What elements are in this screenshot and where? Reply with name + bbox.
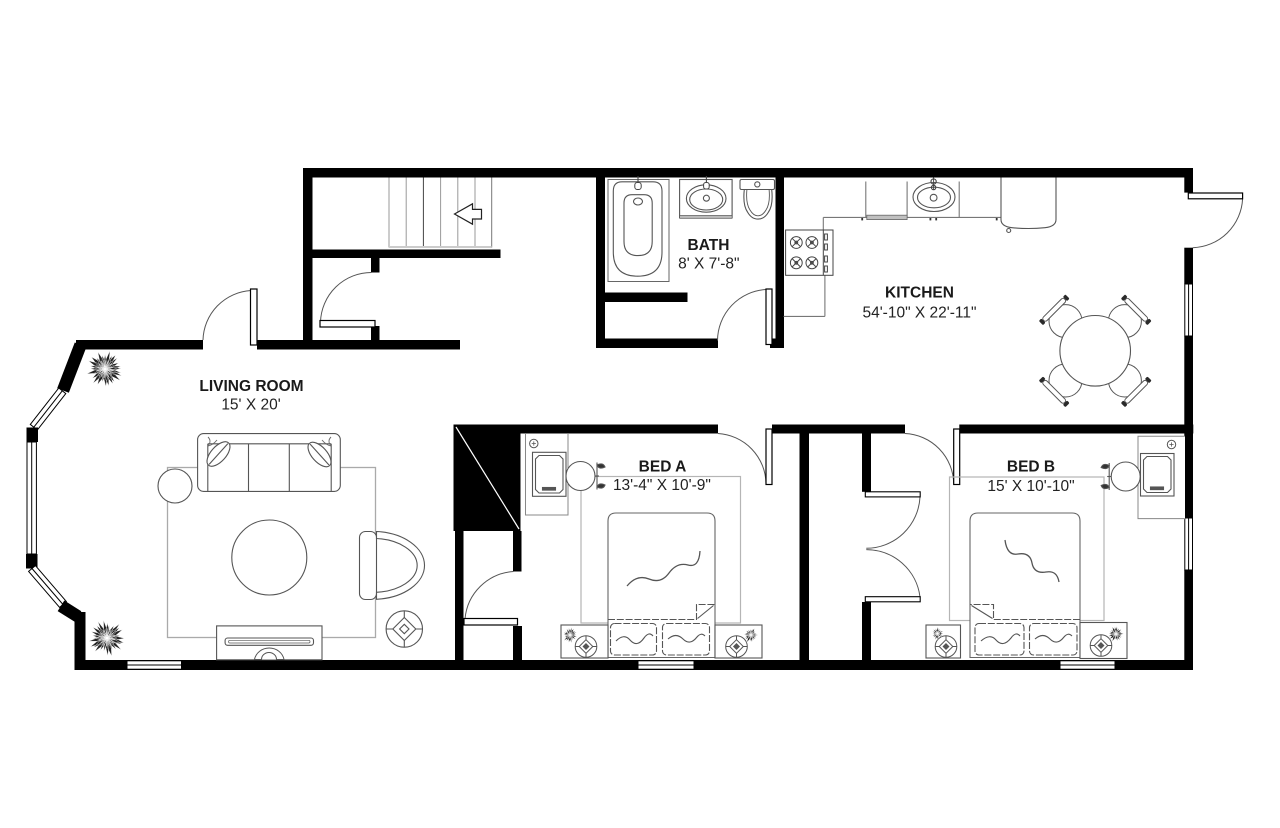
- svg-text:BED B: BED B: [1007, 459, 1055, 476]
- svg-text:8' X 7'-8": 8' X 7'-8": [678, 256, 739, 273]
- svg-text:BED A: BED A: [639, 459, 687, 476]
- svg-text:54'-10" X 22'-11": 54'-10" X 22'-11": [862, 305, 976, 322]
- svg-text:13'-4" X 10'-9": 13'-4" X 10'-9": [613, 477, 711, 494]
- svg-text:KITCHEN: KITCHEN: [885, 285, 954, 302]
- svg-text:15' X 20': 15' X 20': [221, 397, 280, 414]
- svg-text:LIVING ROOM: LIVING ROOM: [199, 378, 303, 395]
- svg-text:BATH: BATH: [688, 237, 730, 254]
- svg-text:15' X 10'-10": 15' X 10'-10": [987, 478, 1074, 495]
